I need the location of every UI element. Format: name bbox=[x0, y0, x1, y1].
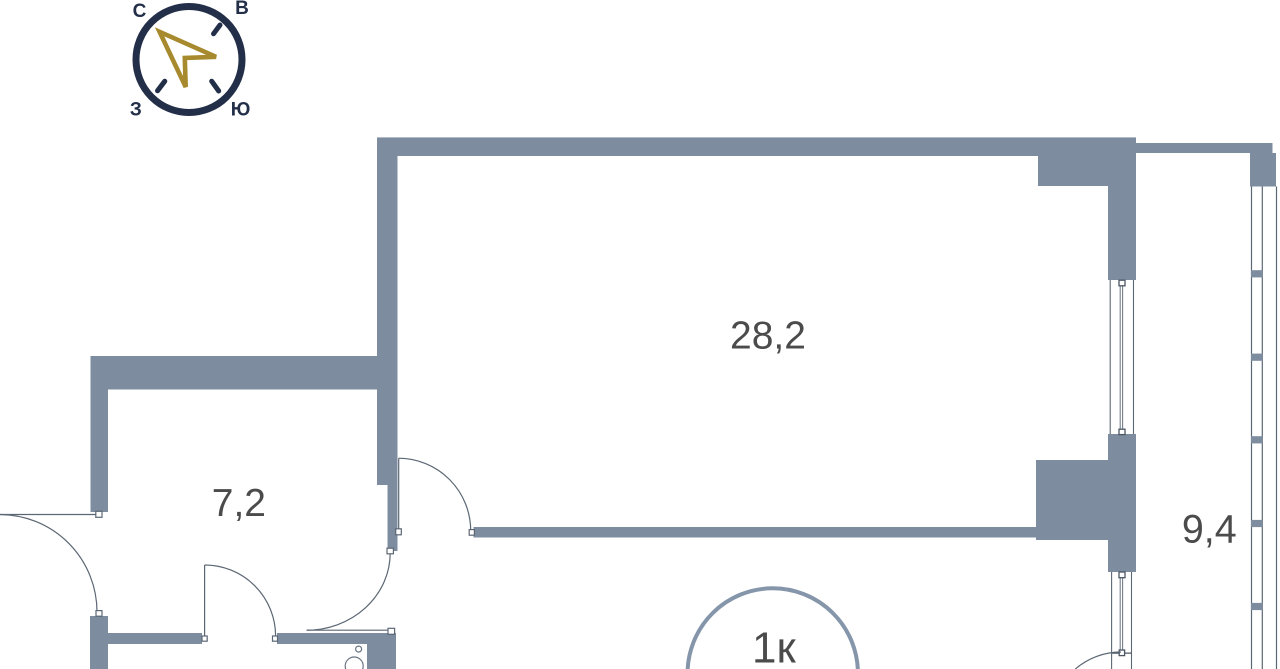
svg-text:С: С bbox=[133, 1, 147, 22]
svg-text:1к: 1к bbox=[752, 624, 796, 669]
svg-text:28,2: 28,2 bbox=[730, 315, 806, 358]
svg-text:7,2: 7,2 bbox=[212, 482, 266, 525]
svg-text:З: З bbox=[130, 100, 142, 121]
svg-text:В: В bbox=[235, 0, 249, 19]
svg-text:9,4: 9,4 bbox=[1182, 507, 1237, 551]
svg-text:Ю: Ю bbox=[231, 100, 251, 121]
